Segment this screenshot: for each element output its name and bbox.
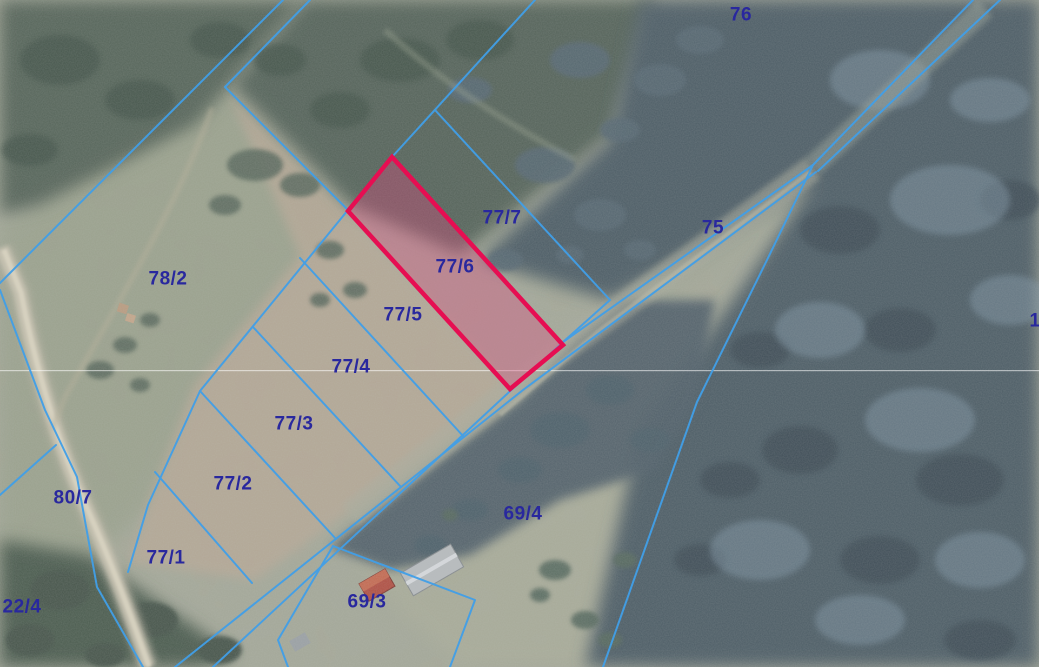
aerial-imagery bbox=[0, 0, 1039, 667]
map-canvas[interactable]: 76 75 77/7 77/6 77/5 77/4 77/3 77/2 77/1… bbox=[0, 0, 1039, 667]
